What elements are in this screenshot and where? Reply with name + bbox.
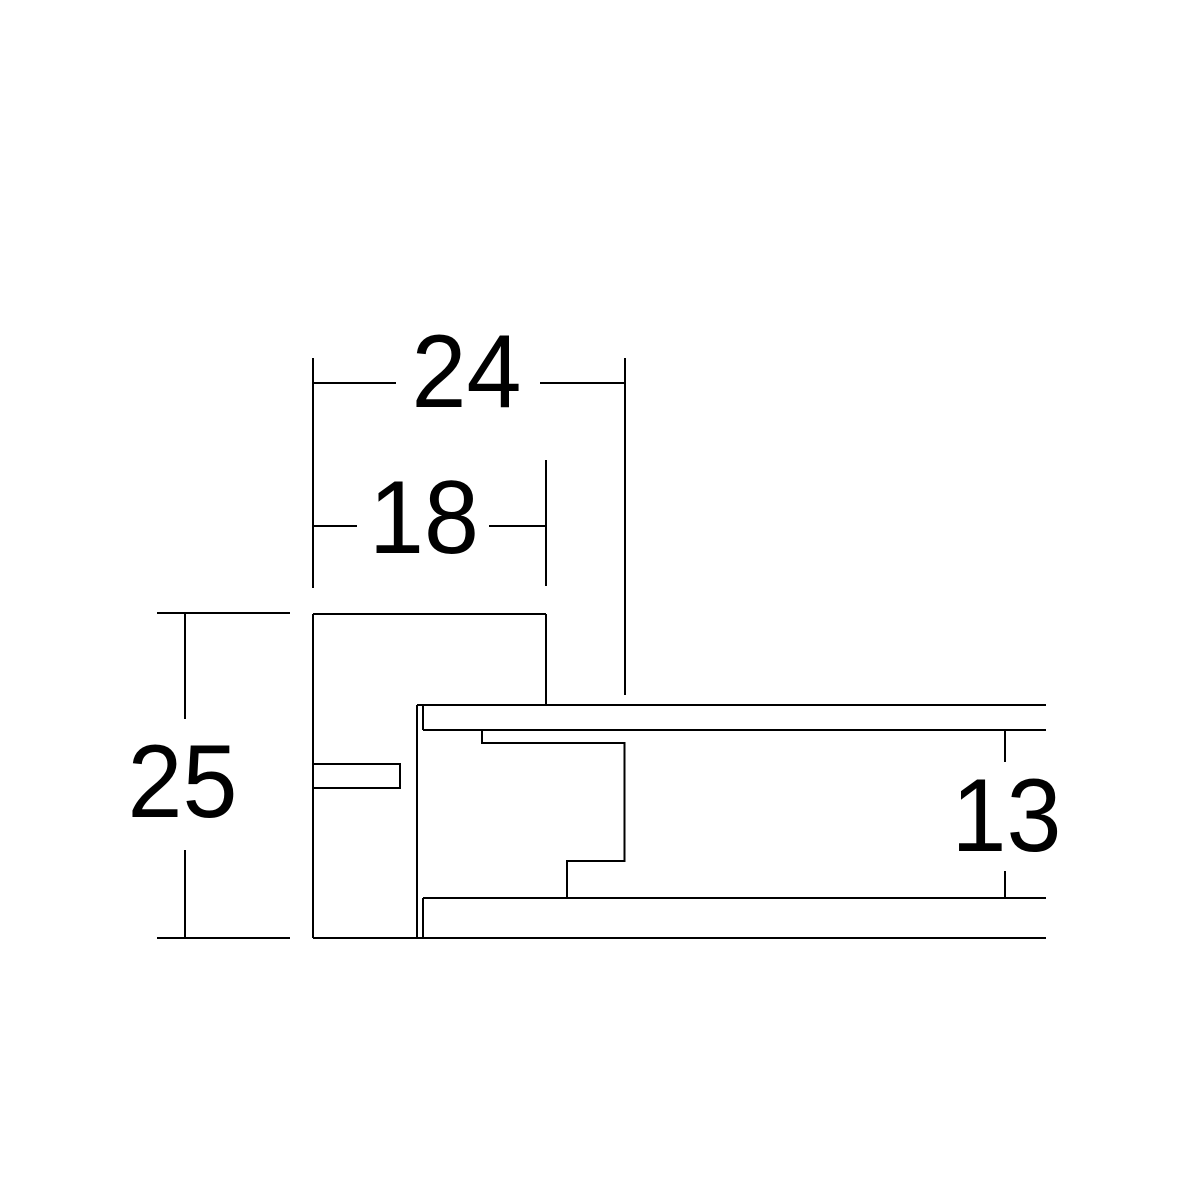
svg-text:25: 25 — [128, 724, 238, 840]
svg-text:18: 18 — [369, 460, 479, 576]
svg-text:13: 13 — [952, 758, 1062, 874]
svg-text:24: 24 — [412, 314, 522, 430]
